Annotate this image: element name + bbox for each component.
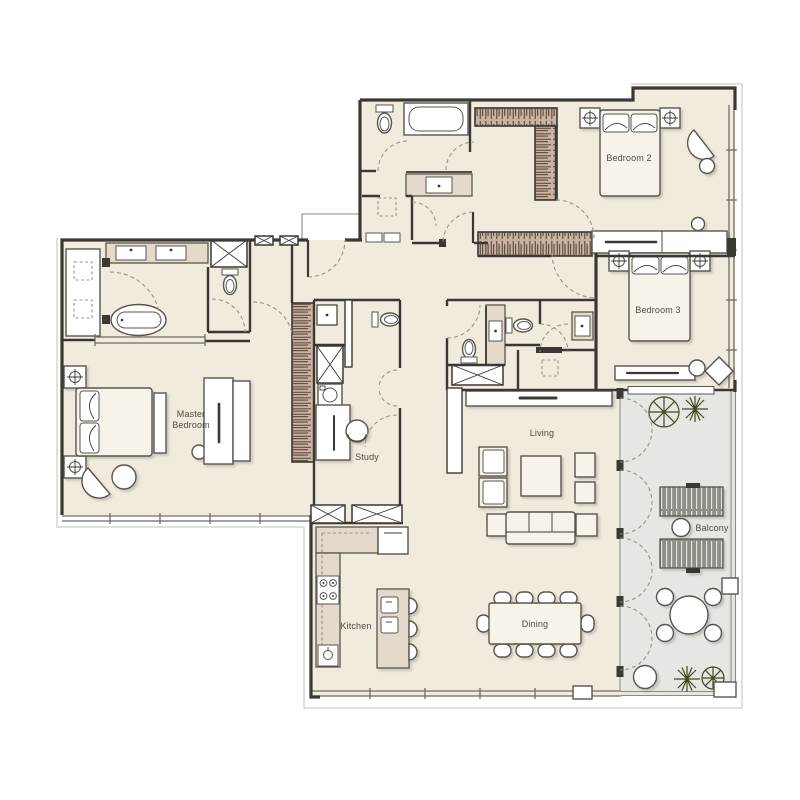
label-living: Living [530, 428, 554, 438]
label-kitchen: Kitchen [340, 621, 371, 631]
wardrobe-bedroom3 [478, 232, 592, 256]
master-wardrobe [204, 378, 250, 464]
side-table [689, 360, 705, 376]
wall-poche [447, 388, 462, 473]
balcony-chair [657, 589, 674, 606]
wardrobe-master-corridor [292, 303, 314, 462]
console-bedroom2 [592, 231, 727, 253]
dining-chair [560, 644, 577, 657]
wall-poche [345, 300, 352, 367]
master-closet-cabinet [66, 249, 100, 336]
washing-machine [318, 384, 342, 406]
bath-a-vanity [486, 305, 505, 365]
sofa [506, 512, 575, 544]
bathtub-upper [404, 103, 468, 135]
coffee-table [521, 456, 561, 496]
stove [317, 576, 339, 604]
side-table [575, 453, 595, 477]
entry-recess-outline [302, 214, 360, 240]
side-table [700, 159, 715, 174]
dining-chair [538, 644, 555, 657]
label-master-bedroom: Bedroom [172, 420, 210, 430]
shower-master [211, 240, 247, 267]
shower-study-bath [317, 346, 343, 383]
door-threshold [536, 347, 562, 353]
side-table [692, 218, 705, 231]
balcony-chair [705, 589, 722, 606]
label-study: Study [355, 452, 379, 462]
dining-chair [477, 615, 490, 632]
shaft-closet-xbox [452, 365, 503, 385]
side-table [575, 482, 595, 503]
floorplan-page: Master Bedroom Bedroom 2 Bedroom 3 Study… [0, 0, 800, 800]
pillar [722, 578, 738, 594]
side-table [576, 514, 597, 536]
balcony-chair [657, 625, 674, 642]
master-bath-vanity [106, 243, 208, 263]
sink-study-bath [317, 305, 337, 325]
pillar [573, 686, 592, 699]
fridge [378, 527, 408, 554]
bed-bench [154, 393, 166, 453]
planter [634, 666, 657, 689]
powder-vanity-upper [406, 174, 472, 196]
door-jamb [102, 315, 110, 324]
label-bedroom2: Bedroom 2 [606, 153, 651, 163]
desk-chair [346, 420, 368, 442]
window-bedroom3-balcony [628, 387, 714, 395]
door-jamb [102, 258, 110, 267]
kitchen-island [377, 589, 417, 668]
label-bedroom3: Bedroom 3 [635, 305, 680, 315]
dining-chair [516, 644, 533, 657]
side-table [487, 514, 508, 536]
bath-b-vanity [572, 312, 593, 340]
side-table [112, 465, 136, 489]
side-table [672, 519, 690, 537]
sun-lounger [660, 487, 723, 516]
label-dining: Dining [522, 619, 548, 629]
balcony-table [670, 596, 708, 634]
toilet-study-bath [372, 312, 400, 327]
label-master-bedroom: Master [177, 409, 205, 419]
toilet-upper-bath [376, 105, 393, 133]
toilet-master-wc [222, 269, 238, 295]
kitchen-sink [318, 645, 338, 666]
floorplan-drawing: Master Bedroom Bedroom 2 Bedroom 3 Study… [0, 0, 800, 800]
pillow [603, 114, 629, 132]
door-jamb [439, 239, 446, 247]
toilet-bath-a [461, 340, 477, 364]
toilet-bath-b [506, 318, 533, 333]
pillar [714, 682, 736, 697]
dining-chair [581, 615, 594, 632]
dining-chair [494, 644, 511, 657]
bathtub-master [111, 305, 166, 336]
sun-lounger [660, 539, 723, 568]
pillow [631, 114, 657, 132]
balcony-chair [705, 625, 722, 642]
label-balcony: Balcony [695, 523, 728, 533]
tree-icon [649, 397, 679, 427]
closet-xbox-band [311, 505, 402, 523]
